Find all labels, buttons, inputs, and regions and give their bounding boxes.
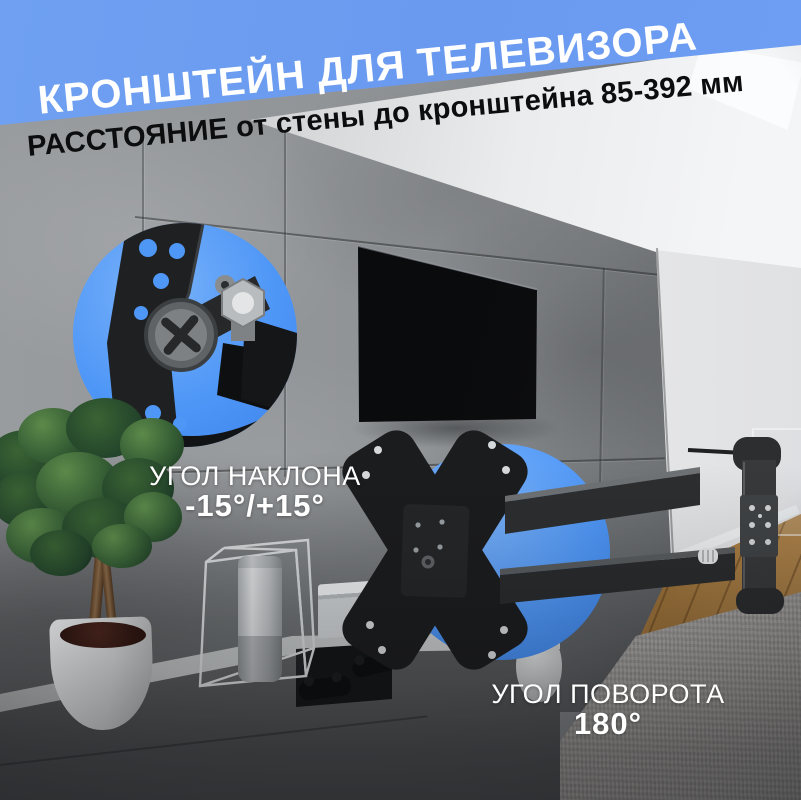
articulating-arm <box>500 467 735 604</box>
plant-soil <box>60 622 146 648</box>
glass-candle-holder <box>238 556 282 682</box>
tilt-value: -15°/+15° <box>125 490 385 522</box>
tilt-label: УГОЛ НАКЛОНА <box>125 462 385 490</box>
vesa-plate <box>340 423 535 677</box>
tv-bracket-product <box>340 420 801 690</box>
plant-foliage <box>92 524 152 568</box>
swivel-value: 180° <box>478 708 738 740</box>
product-banner-image: КРОНШТЕЙН ДЛЯ ТЕЛЕВИЗОРА РАССТОЯНИЕ от с… <box>0 0 801 800</box>
wall-mount-base <box>688 437 784 614</box>
swivel-callout: УГОЛ ПОВОРОТА 180° <box>478 680 738 740</box>
plant-foliage <box>30 530 92 576</box>
tilt-callout: УГОЛ НАКЛОНА -15°/+15° <box>125 462 385 522</box>
swivel-label: УГОЛ ПОВОРОТА <box>478 680 738 708</box>
